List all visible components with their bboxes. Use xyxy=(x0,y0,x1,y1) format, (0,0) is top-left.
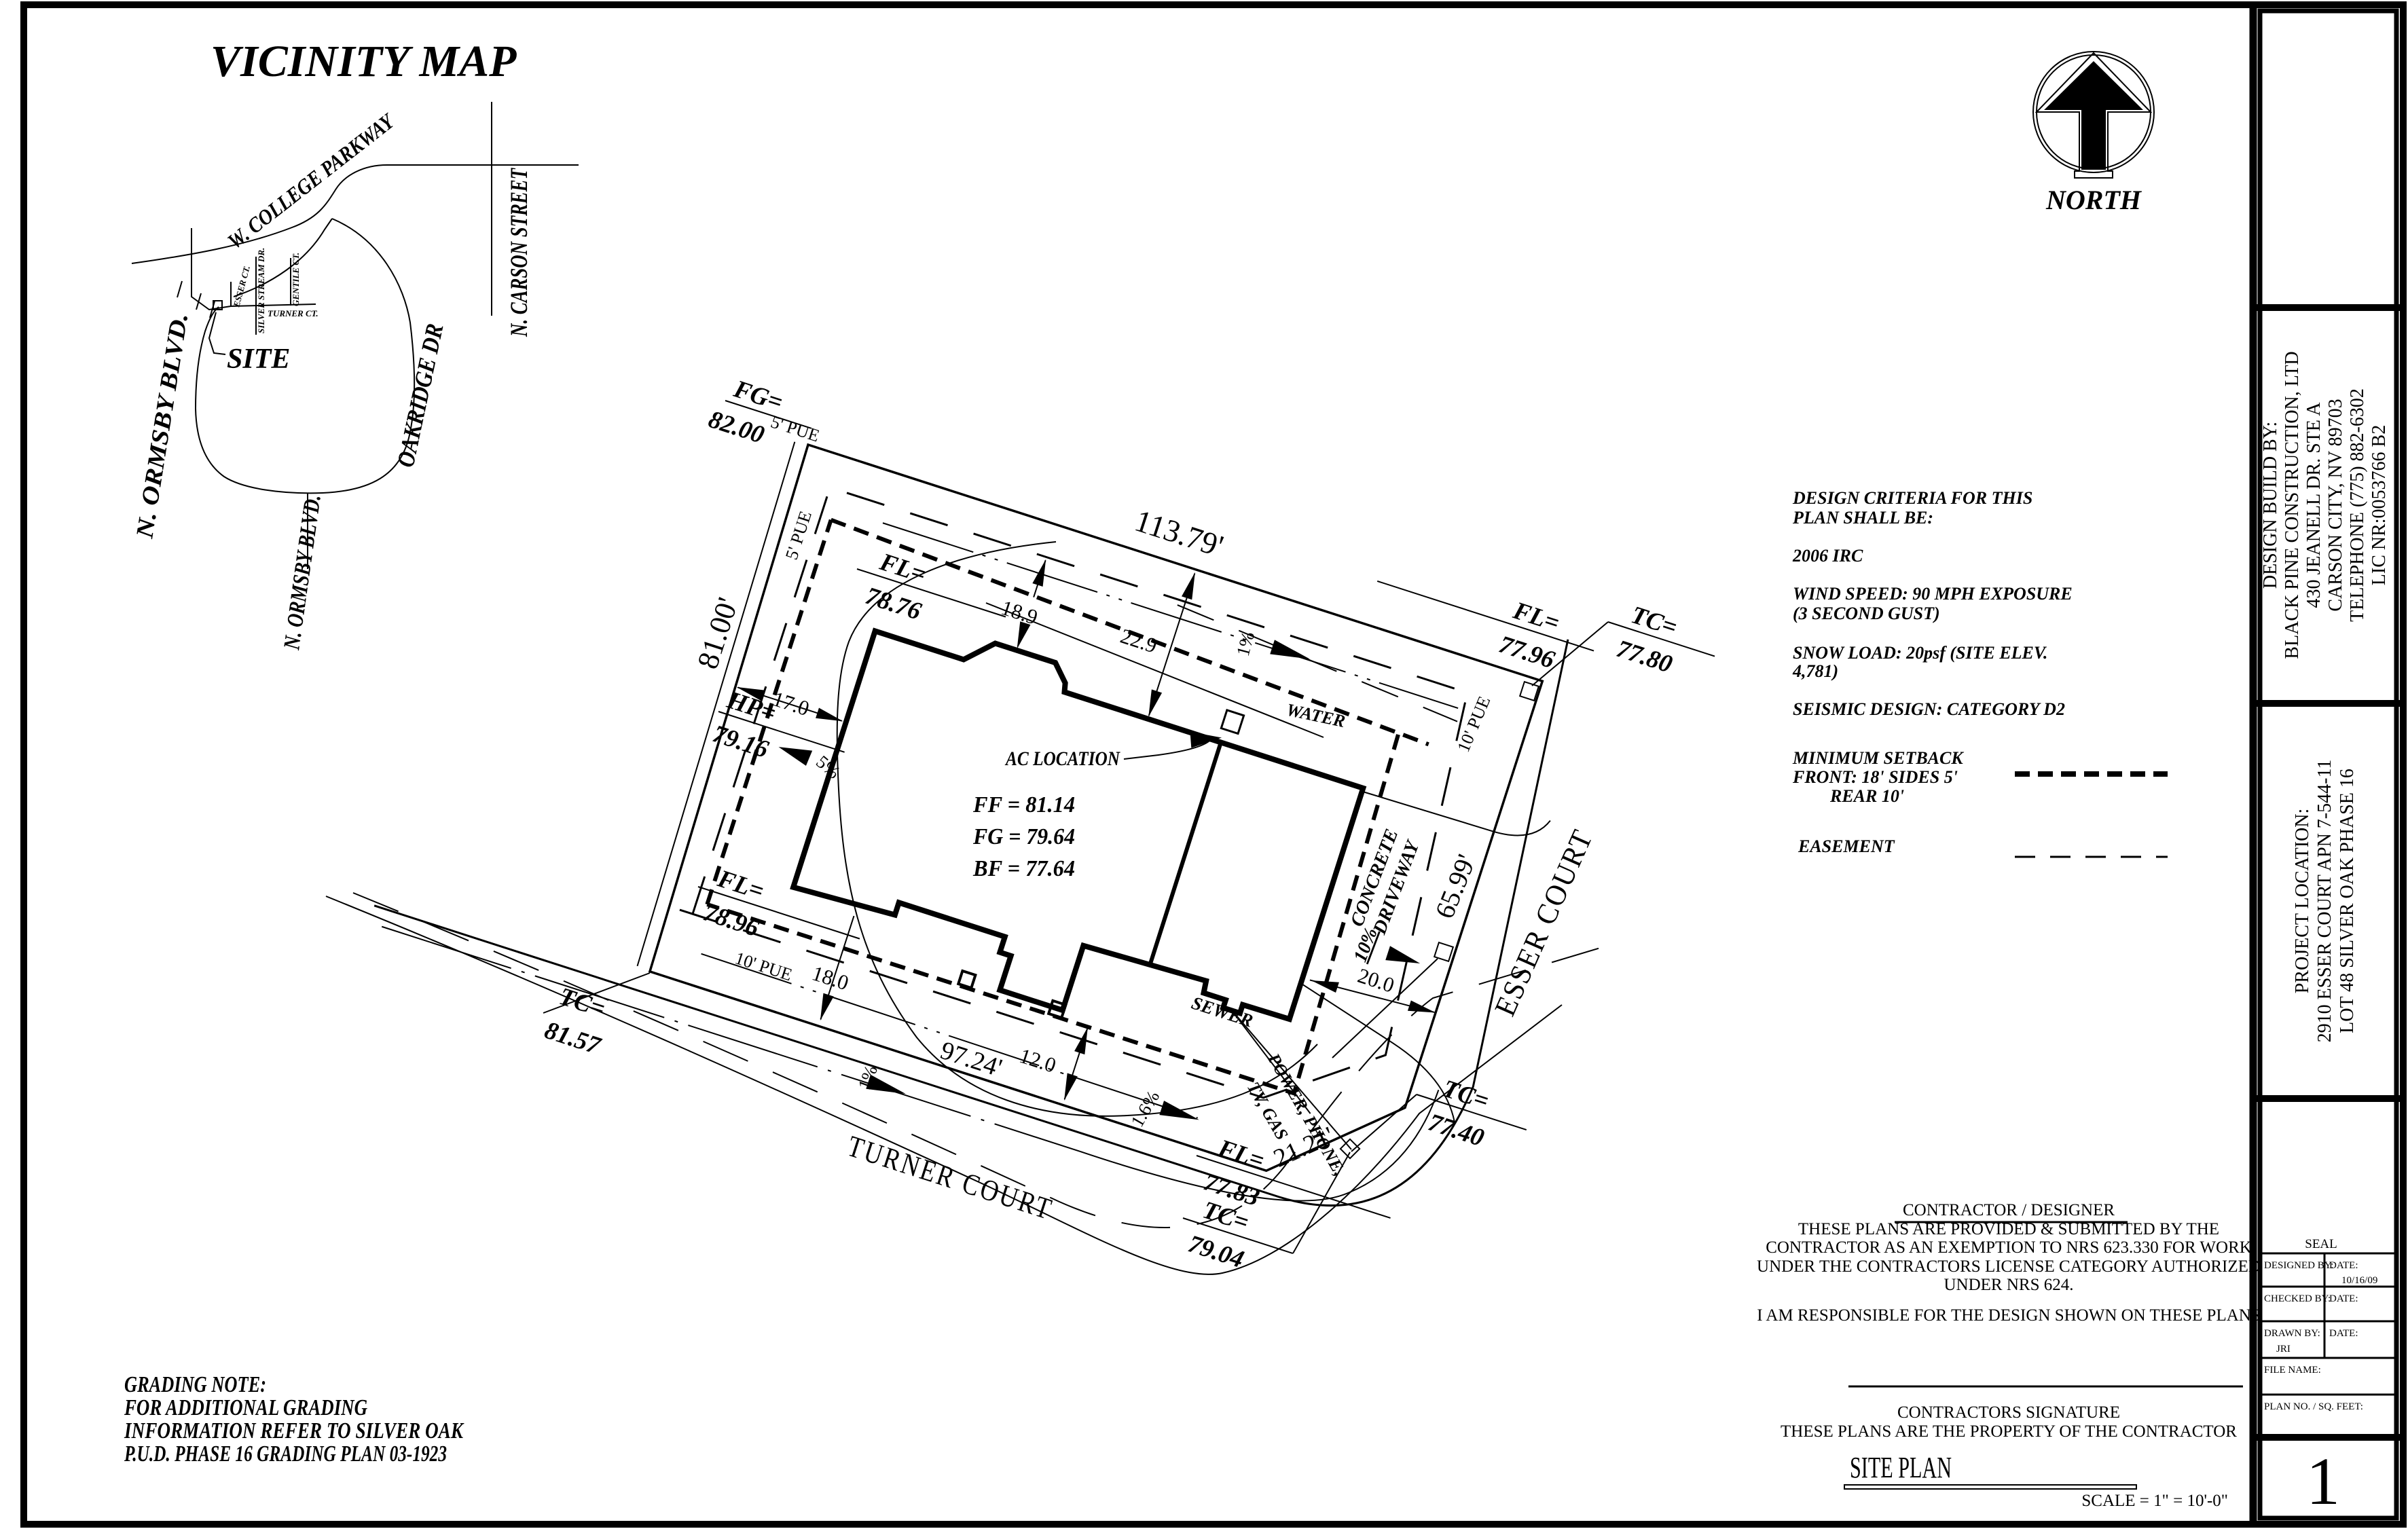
svg-text:PLAN NO. / SQ. FEET:: PLAN NO. / SQ. FEET: xyxy=(2264,1401,2363,1412)
svg-text:UNDER NRS 624.: UNDER NRS 624. xyxy=(1944,1276,2074,1294)
svg-text:10/16/09: 10/16/09 xyxy=(2341,1275,2377,1286)
svg-text:CONTRACTOR / DESIGNER: CONTRACTOR / DESIGNER xyxy=(1903,1201,2115,1219)
svg-text:N. CARSON STREET: N. CARSON STREET xyxy=(505,168,532,337)
svg-text:MINIMUM SETBACK: MINIMUM SETBACK xyxy=(1792,748,1964,768)
svg-text:FILE NAME:: FILE NAME: xyxy=(2264,1365,2321,1376)
svg-text:DATE:: DATE: xyxy=(2329,1260,2358,1271)
svg-text:TURNER CT.: TURNER CT. xyxy=(268,308,318,318)
svg-text:FF = 81.14: FF = 81.14 xyxy=(972,792,1075,817)
svg-text:LIC NR:0053766 B2: LIC NR:0053766 B2 xyxy=(2369,425,2390,585)
svg-text:GENTILE CT.: GENTILE CT. xyxy=(291,253,301,306)
svg-text:EASEMENT: EASEMENT xyxy=(1798,836,1895,856)
svg-text:BLACK PINE CONSTRUCTION, LTD: BLACK PINE CONSTRUCTION, LTD xyxy=(2282,351,2303,659)
svg-text:SILVER STREAM DR.: SILVER STREAM DR. xyxy=(256,248,266,333)
svg-text:TELEPHONE (775) 882-6302: TELEPHONE (775) 882-6302 xyxy=(2347,388,2368,622)
svg-text:DESIGN CRITERIA FOR THIS: DESIGN CRITERIA FOR THIS xyxy=(1792,488,2032,508)
svg-text:P.U.D. PHASE 16 GRADING PLAN 0: P.U.D. PHASE 16 GRADING PLAN 03-1923 xyxy=(124,1441,447,1467)
svg-text:2910 ESSER COURT APN 7-544-11: 2910 ESSER COURT APN 7-544-11 xyxy=(2314,760,2335,1043)
svg-text:GRADING NOTE:: GRADING NOTE: xyxy=(124,1372,266,1397)
svg-text:CARSON CITY, NV 89703: CARSON CITY, NV 89703 xyxy=(2325,399,2346,611)
svg-text:1: 1 xyxy=(2306,1443,2340,1519)
svg-text:DATE:: DATE: xyxy=(2329,1328,2358,1339)
svg-text:2006 IRC: 2006 IRC xyxy=(1792,546,1863,566)
svg-text:AC LOCATION: AC LOCATION xyxy=(1004,748,1120,770)
svg-text:BF = 77.64: BF = 77.64 xyxy=(972,856,1075,881)
svg-text:CONTRACTOR AS AN EXEMPTION TO: CONTRACTOR AS AN EXEMPTION TO NRS 623.33… xyxy=(1766,1238,2252,1257)
svg-text:JRI: JRI xyxy=(2276,1344,2291,1355)
svg-text:INFORMATION REFER TO SILVER OA: INFORMATION REFER TO SILVER OAK xyxy=(124,1418,464,1443)
svg-text:SCALE = 1" = 10'-0": SCALE = 1" = 10'-0" xyxy=(2081,1492,2228,1510)
svg-text:REAR 10': REAR 10' xyxy=(1829,786,1904,806)
svg-text:FG = 79.64: FG = 79.64 xyxy=(972,824,1075,849)
svg-text:VICINITY MAP: VICINITY MAP xyxy=(211,37,517,86)
svg-text:WIND SPEED: 90 MPH EXPOSURE: WIND SPEED: 90 MPH EXPOSURE xyxy=(1793,584,2073,604)
svg-text:4,781): 4,781) xyxy=(1792,661,1838,681)
svg-text:DESIGN BUILD BY:: DESIGN BUILD BY: xyxy=(2260,422,2281,589)
svg-text:DESIGNED BY:: DESIGNED BY: xyxy=(2264,1260,2333,1271)
svg-text:PROJECT LOCATION:: PROJECT LOCATION: xyxy=(2292,809,2313,994)
svg-text:LOT 48 SILVER OAK PHASE 16: LOT 48 SILVER OAK PHASE 16 xyxy=(2337,769,2358,1033)
svg-text:DRAWN BY:: DRAWN BY: xyxy=(2264,1328,2320,1339)
svg-text:SEISMIC DESIGN: CATEGORY D2: SEISMIC DESIGN: CATEGORY D2 xyxy=(1793,699,2065,719)
svg-text:DATE:: DATE: xyxy=(2329,1293,2358,1304)
svg-text:FOR ADDITIONAL GRADING: FOR ADDITIONAL GRADING xyxy=(124,1395,367,1420)
svg-text:CONTRACTORS SIGNATURE: CONTRACTORS SIGNATURE xyxy=(1897,1403,2120,1422)
svg-text:PLAN SHALL BE:: PLAN SHALL BE: xyxy=(1792,508,1933,528)
svg-text:430 JEANELL DR. STE A: 430 JEANELL DR. STE A xyxy=(2303,402,2324,608)
svg-text:SITE: SITE xyxy=(227,344,290,375)
svg-text:SNOW LOAD: 20psf (SITE ELEV.: SNOW LOAD: 20psf (SITE ELEV. xyxy=(1793,643,2047,663)
svg-text:THESE PLANS ARE THE PROPERTY O: THESE PLANS ARE THE PROPERTY OF THE CONT… xyxy=(1781,1422,2237,1441)
svg-text:NORTH: NORTH xyxy=(2045,185,2142,215)
svg-text:CHECKED BY:: CHECKED BY: xyxy=(2264,1293,2331,1304)
svg-text:UNDER THE CONTRACTORS LICENSE: UNDER THE CONTRACTORS LICENSE CATEGORY A… xyxy=(1757,1257,2261,1276)
svg-text:SEAL: SEAL xyxy=(2305,1237,2337,1251)
svg-text:FRONT: 18' SIDES 5': FRONT: 18' SIDES 5' xyxy=(1792,767,1958,787)
svg-text:I AM RESPONSIBLE FOR THE DESIG: I AM RESPONSIBLE FOR THE DESIGN SHOWN ON… xyxy=(1757,1306,2261,1325)
svg-text:(3 SECOND GUST): (3 SECOND GUST) xyxy=(1793,604,1940,623)
svg-text:SITE PLAN: SITE PLAN xyxy=(1850,1451,1952,1484)
